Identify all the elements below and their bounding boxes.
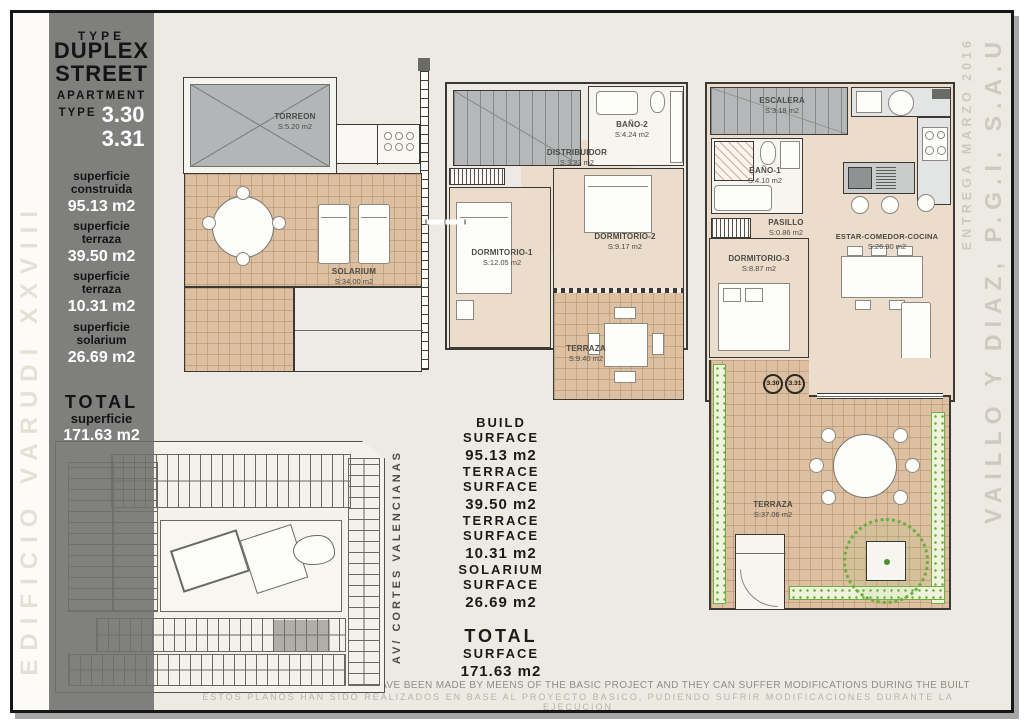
surface-value: 10.31 m2 [49, 298, 154, 316]
summary-label: SURFACE [421, 529, 581, 544]
pillow [723, 288, 741, 302]
room-area-dormitorio2: S:9.17 m2 [585, 242, 665, 252]
surface-total: TOTAL superficie 171.63 m2 [49, 393, 154, 445]
solarium-terrace-lower [184, 287, 294, 372]
surface-terrace-2: superficie terraza 10.31 m2 [49, 270, 154, 316]
room-area-terraza-first: S:9.40 m2 [557, 354, 615, 364]
room-name-bano1: BAÑO-1 [735, 166, 795, 176]
bed-line [588, 186, 648, 187]
hedge-right [931, 412, 945, 604]
surface-label: superficie [49, 170, 154, 183]
burner [395, 132, 403, 140]
site-units-column-right [348, 458, 380, 686]
sink [780, 141, 800, 169]
unit-badge-label: 3.30 [767, 380, 780, 387]
summary-terrace-2: TERRACE SURFACE 10.31 m2 [421, 514, 581, 562]
lounger-line [321, 217, 347, 218]
bbq-counter [336, 124, 420, 164]
type-value-line2: STREET [49, 63, 154, 85]
summary-solarium: SOLARIUM SURFACE 26.69 m2 [421, 563, 581, 611]
room-area-bano1: S:4.10 m2 [735, 176, 795, 186]
surface-label: construida [49, 183, 154, 196]
shower-column [670, 91, 683, 163]
burner [937, 131, 945, 139]
room-area-escalera: S:3.18 m2 [727, 106, 837, 116]
site-pool [170, 529, 250, 592]
surface-label: superficie [49, 220, 154, 233]
chair [821, 428, 836, 443]
chair [905, 458, 920, 473]
summary-label: TERRACE [421, 514, 581, 529]
summary-label: SURFACE [421, 480, 581, 495]
tree-trunk [884, 559, 890, 565]
chair [652, 333, 664, 355]
burner [937, 146, 946, 155]
chair [236, 252, 250, 266]
wardrobe [711, 218, 751, 238]
shed-line [736, 553, 786, 554]
summary-total-sublabel: SURFACE [421, 647, 581, 662]
room-area-dormitorio1: S:12.05 m2 [459, 258, 545, 268]
edge-strip: EDIFICIO VARUDI XXVIII [13, 13, 49, 710]
summary-total: TOTAL SURFACE 171.63 m2 [421, 627, 581, 680]
chimney [418, 58, 430, 71]
room-area-pasillo: S:0.86 m2 [751, 228, 821, 238]
chair [236, 186, 250, 200]
stool [917, 194, 935, 212]
unit-badge-331: 3.31 [785, 374, 805, 394]
room-name-pasillo: PASILLO [751, 218, 821, 228]
drying-rack [876, 167, 896, 189]
chair [855, 300, 871, 310]
chair [272, 216, 286, 230]
disclaimer-spanish: ESTOS PLANOS HAN SIDO REALIZADOS EN BASE… [183, 692, 973, 712]
room-area-torreon: S:5.20 m2 [256, 122, 334, 132]
summary-label: SOLARIUM [421, 563, 581, 578]
street-label: AV/ CORTES VALENCIANAS [391, 450, 403, 664]
room-dormitorio2 [553, 168, 684, 290]
stool [881, 196, 899, 214]
room-name-dormitorio2: DORMITORIO-2 [585, 232, 665, 242]
kitchen-counter-top [851, 87, 951, 117]
pillow [745, 288, 763, 302]
apartment-label: APARTMENT [49, 90, 154, 102]
window [426, 220, 466, 225]
chair [809, 458, 824, 473]
sheet-frame: EDIFICIO VARUDI XXVIII TYPE DUPLEX STREE… [10, 10, 1014, 713]
summary-value: 10.31 m2 [421, 545, 581, 562]
burner [925, 131, 934, 140]
type-value-line1: DUPLEX [49, 40, 154, 62]
room-name-torreon: TORREON [256, 112, 334, 122]
burner [384, 132, 392, 140]
bathtub [596, 91, 638, 115]
nightstand [456, 300, 474, 320]
room-area-solarium: S:34.00 m2 [304, 277, 404, 287]
apartment-type-row: TYPE 3.30 3.31 [49, 103, 154, 151]
chair [821, 490, 836, 505]
burner [925, 146, 934, 155]
hedge-left [713, 364, 726, 604]
room-name-terraza-ground: TERRAZA [733, 500, 813, 510]
oven [856, 91, 882, 113]
room-name-escalera: ESCALERA [727, 96, 837, 106]
round-table [833, 434, 897, 498]
chair [893, 428, 908, 443]
delivery-date-label: ENTREGA MARZO 2016 [960, 37, 974, 250]
terrace-glass-door [817, 393, 943, 399]
toilet [650, 91, 665, 113]
terrace-sill [553, 288, 684, 293]
void-line [295, 330, 423, 331]
summary-label: SURFACE [421, 431, 581, 446]
chair [614, 371, 636, 383]
apartment-number-1: 3.30 [102, 103, 145, 127]
summary-total-value: 171.63 m2 [421, 663, 581, 680]
room-name-solarium: SOLARIUM [304, 267, 404, 277]
living-extension [809, 358, 951, 397]
room-name-dormitorio1: DORMITORIO-1 [459, 248, 545, 258]
surface-solarium: superficie solarium 26.69 m2 [49, 321, 154, 367]
toilet [760, 141, 776, 165]
island-sink [848, 167, 872, 189]
room-name-distribuidor: DISTRIBUIDOR [527, 148, 627, 158]
unit-badge-330: 3.30 [763, 374, 783, 394]
room-name-terraza-first: TERRAZA [557, 344, 615, 354]
stool [851, 196, 869, 214]
surface-terrace-1: superficie terraza 39.50 m2 [49, 220, 154, 266]
site-courtyard [160, 520, 342, 612]
round-table [212, 196, 274, 258]
total-label: TOTAL [49, 393, 154, 412]
surface-value: 39.50 m2 [49, 248, 154, 266]
surface-label: terraza [49, 283, 154, 296]
surface-value: 26.69 m2 [49, 349, 154, 367]
kitchen-island [843, 162, 915, 194]
room-area-dormitorio3: S:8.87 m2 [715, 264, 803, 274]
chair [614, 307, 636, 319]
room-name-bano2: BAÑO-2 [597, 120, 667, 130]
chair [202, 216, 216, 230]
lounger-line [361, 217, 387, 218]
total-value: 171.63 m2 [49, 427, 154, 445]
apartment-type-label: TYPE [59, 107, 97, 151]
burner [395, 143, 403, 151]
apartment-number-2: 3.31 [102, 127, 145, 151]
burner [384, 143, 392, 151]
plan-ground-floor: ESCALERA S:3.18 m2 BAÑO-1 S:4.10 m2 PASI… [705, 82, 957, 632]
burner [406, 132, 414, 140]
site-lagoon-pool [293, 535, 335, 565]
plan-first-floor: DISTRIBUIDOR S:3.23 m2 BAÑO-2 S:4.24 m2 … [445, 82, 690, 412]
room-area-estar: S:26.90 m2 [831, 242, 943, 252]
site-highlighted-units [274, 620, 330, 652]
summary-total-label: TOTAL [421, 627, 581, 647]
wardrobe [449, 168, 505, 185]
summary-value: 95.13 m2 [421, 447, 581, 464]
chair [893, 490, 908, 505]
room-area-bano2: S:4.24 m2 [597, 130, 667, 140]
summary-label: BUILD [421, 416, 581, 431]
kitchen-counter-right [917, 117, 951, 205]
surface-label: terraza [49, 233, 154, 246]
sink-round [888, 90, 914, 116]
room-name-estar: ESTAR-COMEDOR-COCINA [831, 232, 943, 242]
bathtub [714, 185, 772, 211]
counter-divider [377, 125, 378, 165]
summary-value: 26.69 m2 [421, 594, 581, 611]
surface-label: solarium [49, 334, 154, 347]
door-swing-arc [740, 569, 778, 607]
summary-terrace-1: TERRACE SURFACE 39.50 m2 [421, 465, 581, 513]
plan-solarium-floor: TORREON S:5.20 m2 SOLARIUM [178, 58, 430, 428]
dining-table [841, 256, 923, 298]
summary-value: 39.50 m2 [421, 496, 581, 513]
unit-badge-label: 3.31 [789, 380, 802, 387]
vent [932, 89, 950, 99]
void-area [294, 287, 422, 372]
surface-label: superficie [49, 270, 154, 283]
bed-line [460, 217, 508, 218]
summary-label: SURFACE [421, 578, 581, 593]
room-area-distribuidor: S:3.23 m2 [527, 158, 627, 168]
burner [406, 143, 414, 151]
summary-label: TERRACE [421, 465, 581, 480]
tree-planter [866, 541, 906, 581]
sun-lounger [358, 204, 390, 264]
sun-lounger [318, 204, 350, 264]
plan-sheet: EDIFICIO VARUDI XXVIII TYPE DUPLEX STREE… [0, 0, 1024, 723]
surface-built: superficie construida 95.13 m2 [49, 170, 154, 216]
info-panel: TYPE DUPLEX STREET APARTMENT TYPE 3.30 3… [49, 13, 154, 710]
room-area-terraza-ground: S:37.06 m2 [733, 510, 813, 520]
bed [584, 175, 652, 233]
room-name-dormitorio3: DORMITORIO-3 [715, 254, 803, 264]
apartment-numbers: 3.30 3.31 [102, 103, 145, 151]
bed [718, 283, 790, 351]
architect-title: VAILLO Y DIAZ, P.G.I. S.A.U [980, 35, 1007, 524]
summary-build: BUILD SURFACE 95.13 m2 [421, 416, 581, 464]
storage-shed [735, 534, 785, 610]
surface-value: 95.13 m2 [49, 198, 154, 216]
total-sublabel: superficie [49, 412, 154, 426]
building-title: EDIFICIO VARUDI XXVIII [16, 202, 44, 676]
surface-label: superficie [49, 321, 154, 334]
